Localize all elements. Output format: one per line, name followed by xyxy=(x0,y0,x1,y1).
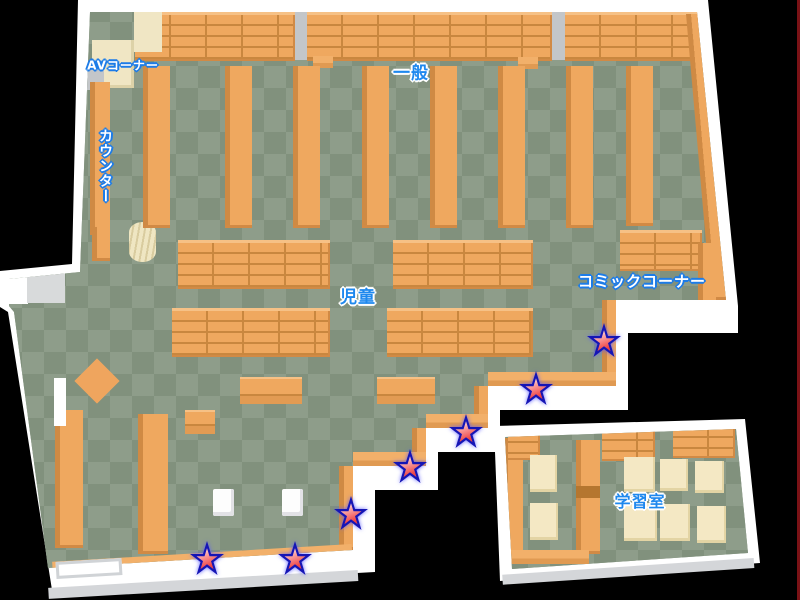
wall-shelf-strip xyxy=(426,414,488,428)
stool-cylinder xyxy=(129,222,156,262)
av-shelf xyxy=(134,12,162,52)
bookshelf xyxy=(138,414,168,554)
bookshelf xyxy=(566,66,593,228)
study-table xyxy=(530,503,558,540)
label-children: 児童 xyxy=(340,283,376,308)
bookshelf xyxy=(498,66,525,228)
study-desk xyxy=(695,461,724,493)
bookshelf xyxy=(393,240,533,289)
wall-shelf-strip xyxy=(488,372,616,386)
bookshelf xyxy=(178,240,330,289)
bookshelf xyxy=(307,12,552,61)
bookshelf xyxy=(387,308,533,357)
label-counter: カウンター xyxy=(95,129,115,204)
wall-shelf-strip xyxy=(339,466,353,550)
bookshelf xyxy=(293,66,320,228)
study-table xyxy=(530,455,557,492)
label-comic-corner: コミックコーナー xyxy=(578,271,706,292)
wall-divider xyxy=(295,12,307,60)
low-table xyxy=(377,377,435,404)
bookshelf xyxy=(620,230,702,271)
wall-shelf-strip xyxy=(507,550,589,564)
bookshelf xyxy=(565,12,698,61)
bookshelf xyxy=(143,66,170,228)
label-general: 一般 xyxy=(393,59,429,84)
wall-shelf-strip xyxy=(353,452,426,466)
floor-rug xyxy=(74,358,119,403)
stool xyxy=(712,57,732,69)
side-door[interactable] xyxy=(54,378,66,426)
bookshelf xyxy=(172,308,330,357)
bookshelf xyxy=(362,66,389,228)
return-box xyxy=(92,227,110,261)
kiosk-box xyxy=(213,489,234,516)
low-table xyxy=(240,377,302,404)
low-table xyxy=(185,410,215,434)
wall-divider xyxy=(552,12,565,60)
carrel-divider-gap xyxy=(576,486,600,498)
bookshelf xyxy=(55,410,83,548)
kiosk-box xyxy=(282,489,303,516)
bookshelf xyxy=(430,66,457,228)
study-desk xyxy=(660,459,688,491)
bookshelf xyxy=(225,66,252,228)
bookshelf xyxy=(626,66,653,226)
label-av-corner: AVコーナー xyxy=(87,57,159,74)
label-study-room: 学習室 xyxy=(614,488,665,512)
library-floor-map: AVコーナー カウンター 一般 児童 コミックコーナー 学習室 xyxy=(0,0,800,600)
study-desk xyxy=(697,506,726,543)
study-desk xyxy=(624,457,655,492)
